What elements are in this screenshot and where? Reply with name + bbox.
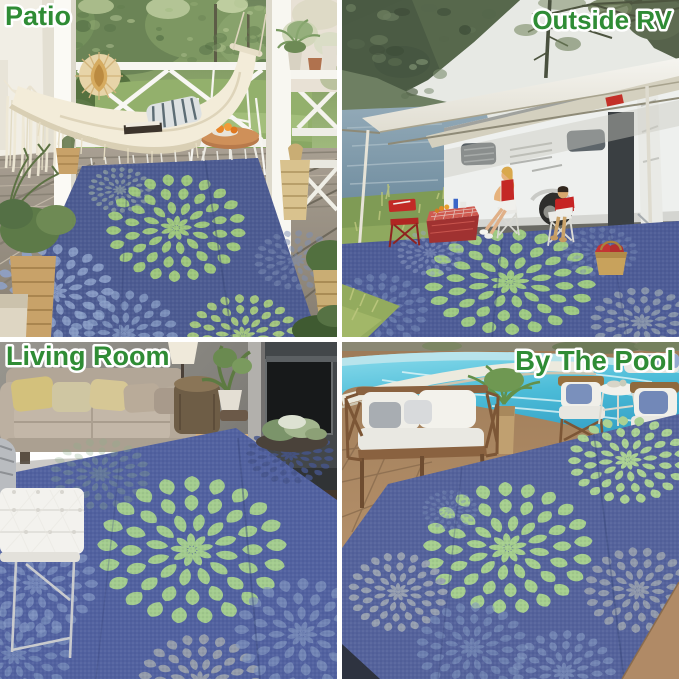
svg-text:By The Pool: By The Pool (515, 345, 674, 376)
svg-text:Outside RV: Outside RV (532, 5, 672, 35)
svg-text:Living Room: Living Room (6, 341, 170, 371)
svg-text:Patio: Patio (5, 1, 71, 31)
